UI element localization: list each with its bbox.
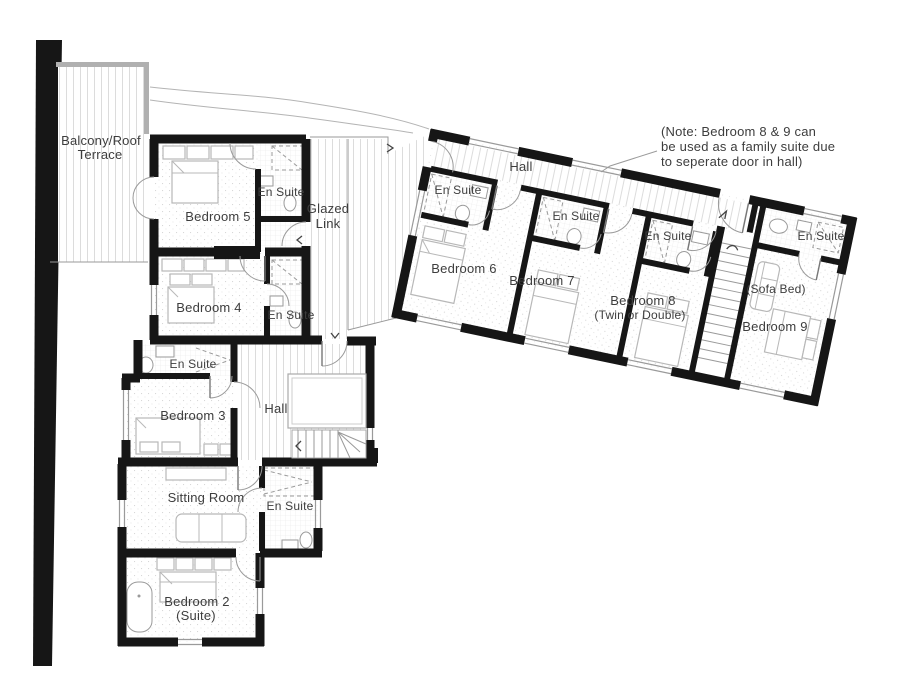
- pillow: [170, 274, 190, 285]
- sofa: [176, 514, 246, 542]
- bathtub: [127, 582, 152, 632]
- terrace-parapet-top: [56, 62, 148, 67]
- ensuite9-label: En Suite: [798, 229, 845, 243]
- ensuite7-label: En Suite: [553, 209, 600, 223]
- bedroom8-label-line2: (Twin or Double): [594, 308, 685, 322]
- bedroom8-label-line1: Bedroom 8: [610, 293, 675, 308]
- bedroom5-label: Bedroom 5: [185, 209, 250, 224]
- wing-hall-label: Hall: [509, 159, 532, 174]
- bedroom7-label: Bedroom 7: [509, 273, 574, 288]
- glazed-link-label-line1: Glazed: [307, 201, 349, 216]
- cabinet: [166, 468, 226, 480]
- sink: [156, 346, 174, 357]
- main-staircase: [288, 374, 366, 458]
- sink: [270, 296, 283, 306]
- terrace-label-line2: Terrace: [78, 147, 123, 162]
- glazed-link-label-line2: Link: [316, 216, 341, 231]
- terrace-label-line1: Balcony/Roof: [61, 133, 141, 148]
- pillow: [162, 442, 180, 452]
- bedroom9-label: Bedroom 9: [742, 319, 807, 334]
- floor-plan-page: Balcony/Roof Terrace Bedroom 5 En Suite …: [0, 0, 900, 700]
- note-line2: be used as a family suite due: [661, 139, 835, 154]
- ensuite6-label: En Suite: [435, 183, 482, 197]
- sitting-room-label: Sitting Room: [168, 490, 245, 505]
- note-line1: (Note: Bedroom 8 & 9 can: [661, 124, 816, 139]
- bedroom4-label: Bedroom 4: [176, 300, 241, 315]
- ensuite2-label: En Suite: [267, 499, 314, 513]
- ensuite3-label: En Suite: [170, 357, 217, 371]
- terrace-parapet-right: [144, 62, 149, 134]
- ensuite4-label: En Suite: [268, 308, 315, 322]
- bath-drain: [138, 595, 141, 598]
- bedroom2-label-line2: (Suite): [176, 608, 216, 623]
- wall-pier: [214, 246, 260, 259]
- ensuite5-label: En Suite: [258, 185, 305, 199]
- ensuite8-label: En Suite: [645, 229, 692, 243]
- bedroom6-label: Bedroom 6: [431, 261, 496, 276]
- bedroom3-label: Bedroom 3: [160, 408, 225, 423]
- lobby5-floor: [258, 219, 306, 252]
- sofa-bed-label: (Sofa Bed): [746, 282, 805, 296]
- terrace-decking: [58, 67, 146, 262]
- floor-plan-drawing: Balcony/Roof Terrace Bedroom 5 En Suite …: [0, 0, 900, 700]
- pillow: [140, 442, 158, 452]
- balcony-roof-terrace: [50, 62, 149, 262]
- pillow: [192, 274, 212, 285]
- glazed-link-floor: [310, 139, 348, 339]
- note-line3: to seperate door in hall): [661, 154, 803, 169]
- hall-label: Hall: [264, 401, 287, 416]
- bedroom2-label-line1: Bedroom 2: [164, 594, 229, 609]
- toilet: [300, 532, 312, 548]
